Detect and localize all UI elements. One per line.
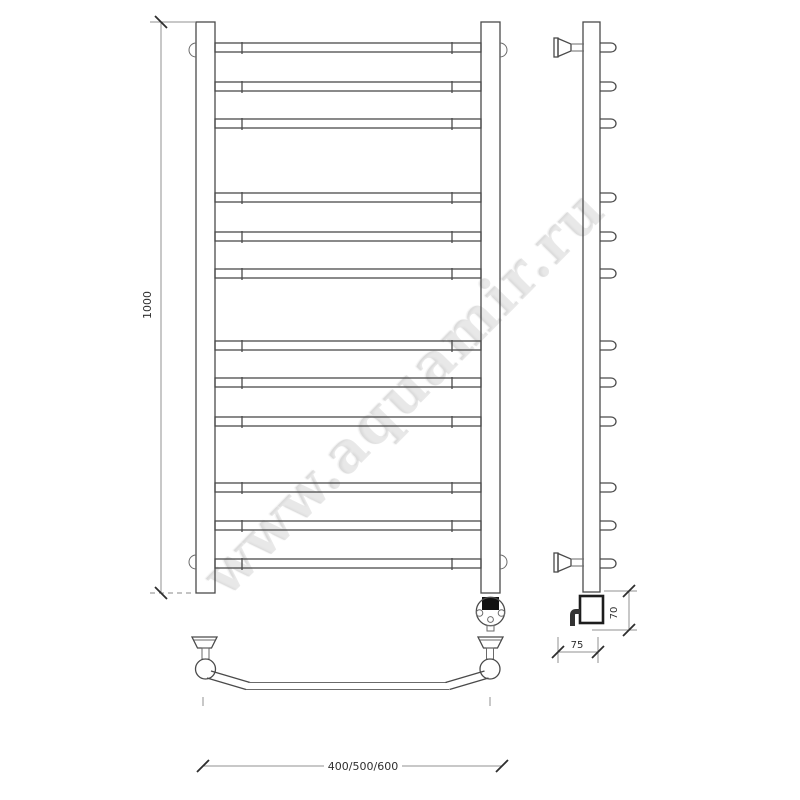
front-rungs [215,42,481,570]
rung [215,119,481,128]
rung [215,82,481,91]
dimension-overall-height: 1000 [141,16,196,599]
side-post [583,22,600,592]
heater-box-side [580,596,603,623]
rung [215,193,481,202]
side-rung-stub [600,82,616,91]
drawing-canvas: www.aquamir.ru [0,0,800,800]
side-rung-stub [600,559,616,568]
dimension-wall-offset: 75 [552,637,604,663]
width-dimension-label: 400/500/600 [328,760,398,773]
height-dimension-label: 1000 [141,291,154,319]
bracket-bump-bottom-left [189,555,196,569]
rung [215,483,481,492]
plan-post-right [480,659,500,679]
side-view [554,22,616,626]
side-flange-bottom-cone [558,554,571,572]
plan-flange-right [478,637,503,648]
bracket-bump-top-left [189,43,196,57]
rung [215,559,481,568]
heater-detail-circle-bottom [488,617,494,623]
plan-view [192,637,503,706]
bracket-bump-bottom-right [500,555,507,569]
front-view [189,22,507,593]
rung [215,417,481,426]
rung [215,378,481,387]
rung [215,232,481,241]
dimension-overall-width: 400/500/600 [197,759,508,774]
side-flange-top-cone [558,39,571,57]
plan-flange-left [192,637,217,648]
side-rung-stub [600,417,616,426]
side-rung-stub [600,269,616,278]
towel-rail-technical-drawing: 1000 70 [0,0,800,800]
side-rung-stub [600,521,616,530]
rung [215,269,481,278]
side-rung-stub [600,193,616,202]
bracket-bump-top-right [500,43,507,57]
side-rung-stub [600,378,616,387]
side-rung-stub [600,119,616,128]
front-right-post [481,22,500,593]
side-rung-stubs [600,43,616,568]
plan-stem-left [202,648,209,659]
wall-offset-label: 75 [571,640,584,651]
front-left-post [196,22,215,593]
heater-detail-circle-left [476,610,483,617]
plan-stem-right [487,648,494,659]
heater-detail-circle-right [498,610,505,617]
rung [215,341,481,350]
heater-height-label: 70 [609,607,620,620]
rung [215,521,481,530]
plan-post-left [196,659,216,679]
side-rung-stub [600,341,616,350]
side-rung-stub [600,232,616,241]
side-rung-stub [600,43,616,52]
side-rung-stub [600,483,616,492]
rung [215,43,481,52]
heating-element-front [476,597,505,631]
